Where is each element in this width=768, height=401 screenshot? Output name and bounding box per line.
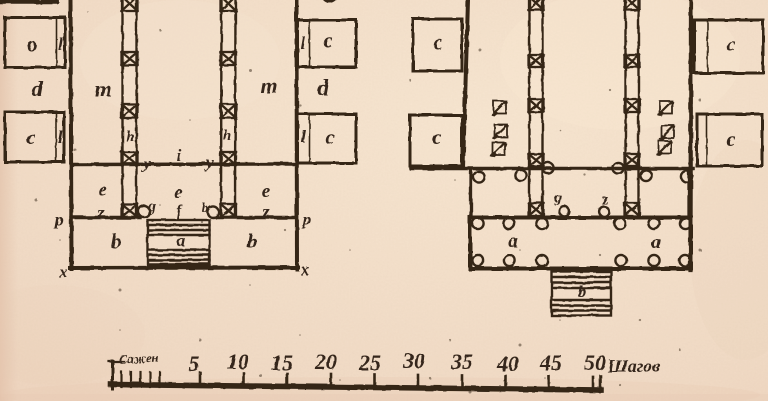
svg-text:Сажен: Сажен — [118, 350, 159, 367]
svg-text:b: b — [111, 229, 122, 253]
svg-text:m: m — [260, 73, 277, 98]
svg-text:a: a — [651, 232, 661, 253]
svg-text:l: l — [300, 126, 305, 146]
svg-text:c: c — [434, 32, 443, 54]
svg-text:c: c — [326, 127, 335, 149]
svg-text:40: 40 — [496, 351, 519, 376]
svg-text:i: i — [177, 146, 182, 165]
svg-text:Шагов: Шагов — [607, 356, 661, 376]
svg-text:x: x — [58, 262, 68, 281]
svg-text:l: l — [300, 33, 305, 53]
svg-text:e: e — [99, 180, 108, 201]
svg-text:l: l — [58, 34, 63, 54]
svg-text:30: 30 — [402, 348, 425, 373]
svg-text:d: d — [32, 76, 44, 101]
svg-text:15: 15 — [271, 350, 293, 375]
svg-text:25: 25 — [358, 350, 381, 375]
svg-text:c: c — [27, 127, 36, 149]
svg-text:b: b — [578, 282, 587, 301]
svg-text:h: h — [223, 128, 231, 144]
svg-text:l: l — [57, 127, 62, 147]
svg-text:x: x — [300, 260, 310, 279]
svg-text:35: 35 — [450, 349, 473, 374]
svg-text:a: a — [508, 231, 518, 252]
svg-text:c: c — [727, 34, 736, 56]
svg-text:p: p — [301, 210, 312, 229]
svg-text:20: 20 — [314, 349, 337, 374]
svg-text:c: c — [727, 129, 736, 151]
svg-text:z: z — [261, 202, 270, 223]
svg-text:y: y — [204, 153, 214, 172]
svg-text:5: 5 — [189, 351, 200, 376]
svg-text:g: g — [553, 190, 562, 206]
svg-text:45: 45 — [539, 350, 562, 375]
svg-text:d: d — [318, 75, 330, 100]
svg-text:10: 10 — [227, 349, 249, 374]
svg-text:b: b — [247, 229, 258, 253]
svg-text:e: e — [262, 181, 271, 202]
svg-text:a: a — [177, 231, 186, 250]
svg-text:o: o — [27, 34, 37, 56]
svg-text:h: h — [126, 129, 134, 145]
svg-text:50: 50 — [584, 350, 606, 375]
svg-text:m: m — [94, 76, 111, 101]
svg-text:z: z — [96, 203, 105, 224]
svg-text:c: c — [324, 30, 333, 52]
svg-text:c: c — [433, 127, 442, 149]
svg-text:e: e — [174, 182, 183, 203]
svg-text:y: y — [141, 154, 151, 173]
svg-text:p: p — [53, 210, 64, 229]
